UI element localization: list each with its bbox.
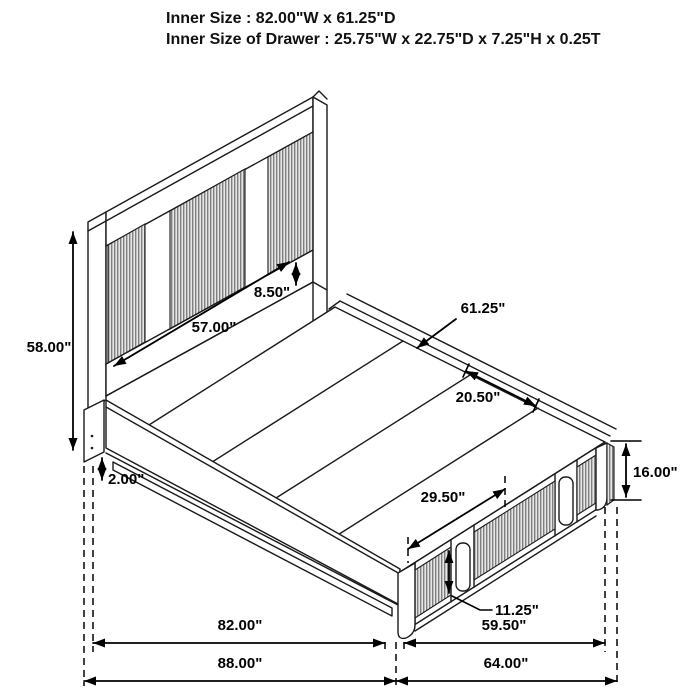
headboard-slat-group-1 [108,224,145,363]
headboard-left-leg [84,400,104,462]
dim-bottom-rail-label: 8.50" [254,284,290,301]
dim-overall-length-label: 88.00" [218,655,263,672]
footboard-corner-post-left [398,563,415,638]
bed-drawing-canvas: 58.00" 57.00" 8.50" 61.25" 20.50" 2.00" … [0,0,700,700]
dim-inner-length-label: 82.00" [218,617,263,634]
bed-dimension-diagram: Inner Size : 82.00"W x 61.25"D Inner Siz… [0,0,700,700]
dim-foot-inner-width-label: 59.50" [482,617,527,634]
leg-pin [91,447,94,450]
dim-headboard-panel-label: 57.00" [192,319,237,336]
leg-pin [91,435,94,438]
dim-footboard-height-label: 16.00" [633,464,678,481]
headboard-left-post [88,212,106,410]
dim-base-clearance-label: 2.00" [108,471,144,488]
dim-deck-depth-leader [417,319,456,348]
drawer-handle-left [456,543,470,591]
headboard-right-post [313,97,327,330]
dim-deck-depth-label: 61.25" [461,300,506,317]
footboard-corner-post-right [596,443,607,510]
footboard-right-return [607,443,614,505]
dim-foot-overall-width-label: 64.00" [484,655,529,672]
dim-headboard-height-label: 58.00" [27,339,72,356]
drawer-handle-right [559,477,573,525]
dim-drawer-width-label: 29.50" [421,489,466,506]
dim-deck-panel-label: 20.50" [456,389,501,406]
